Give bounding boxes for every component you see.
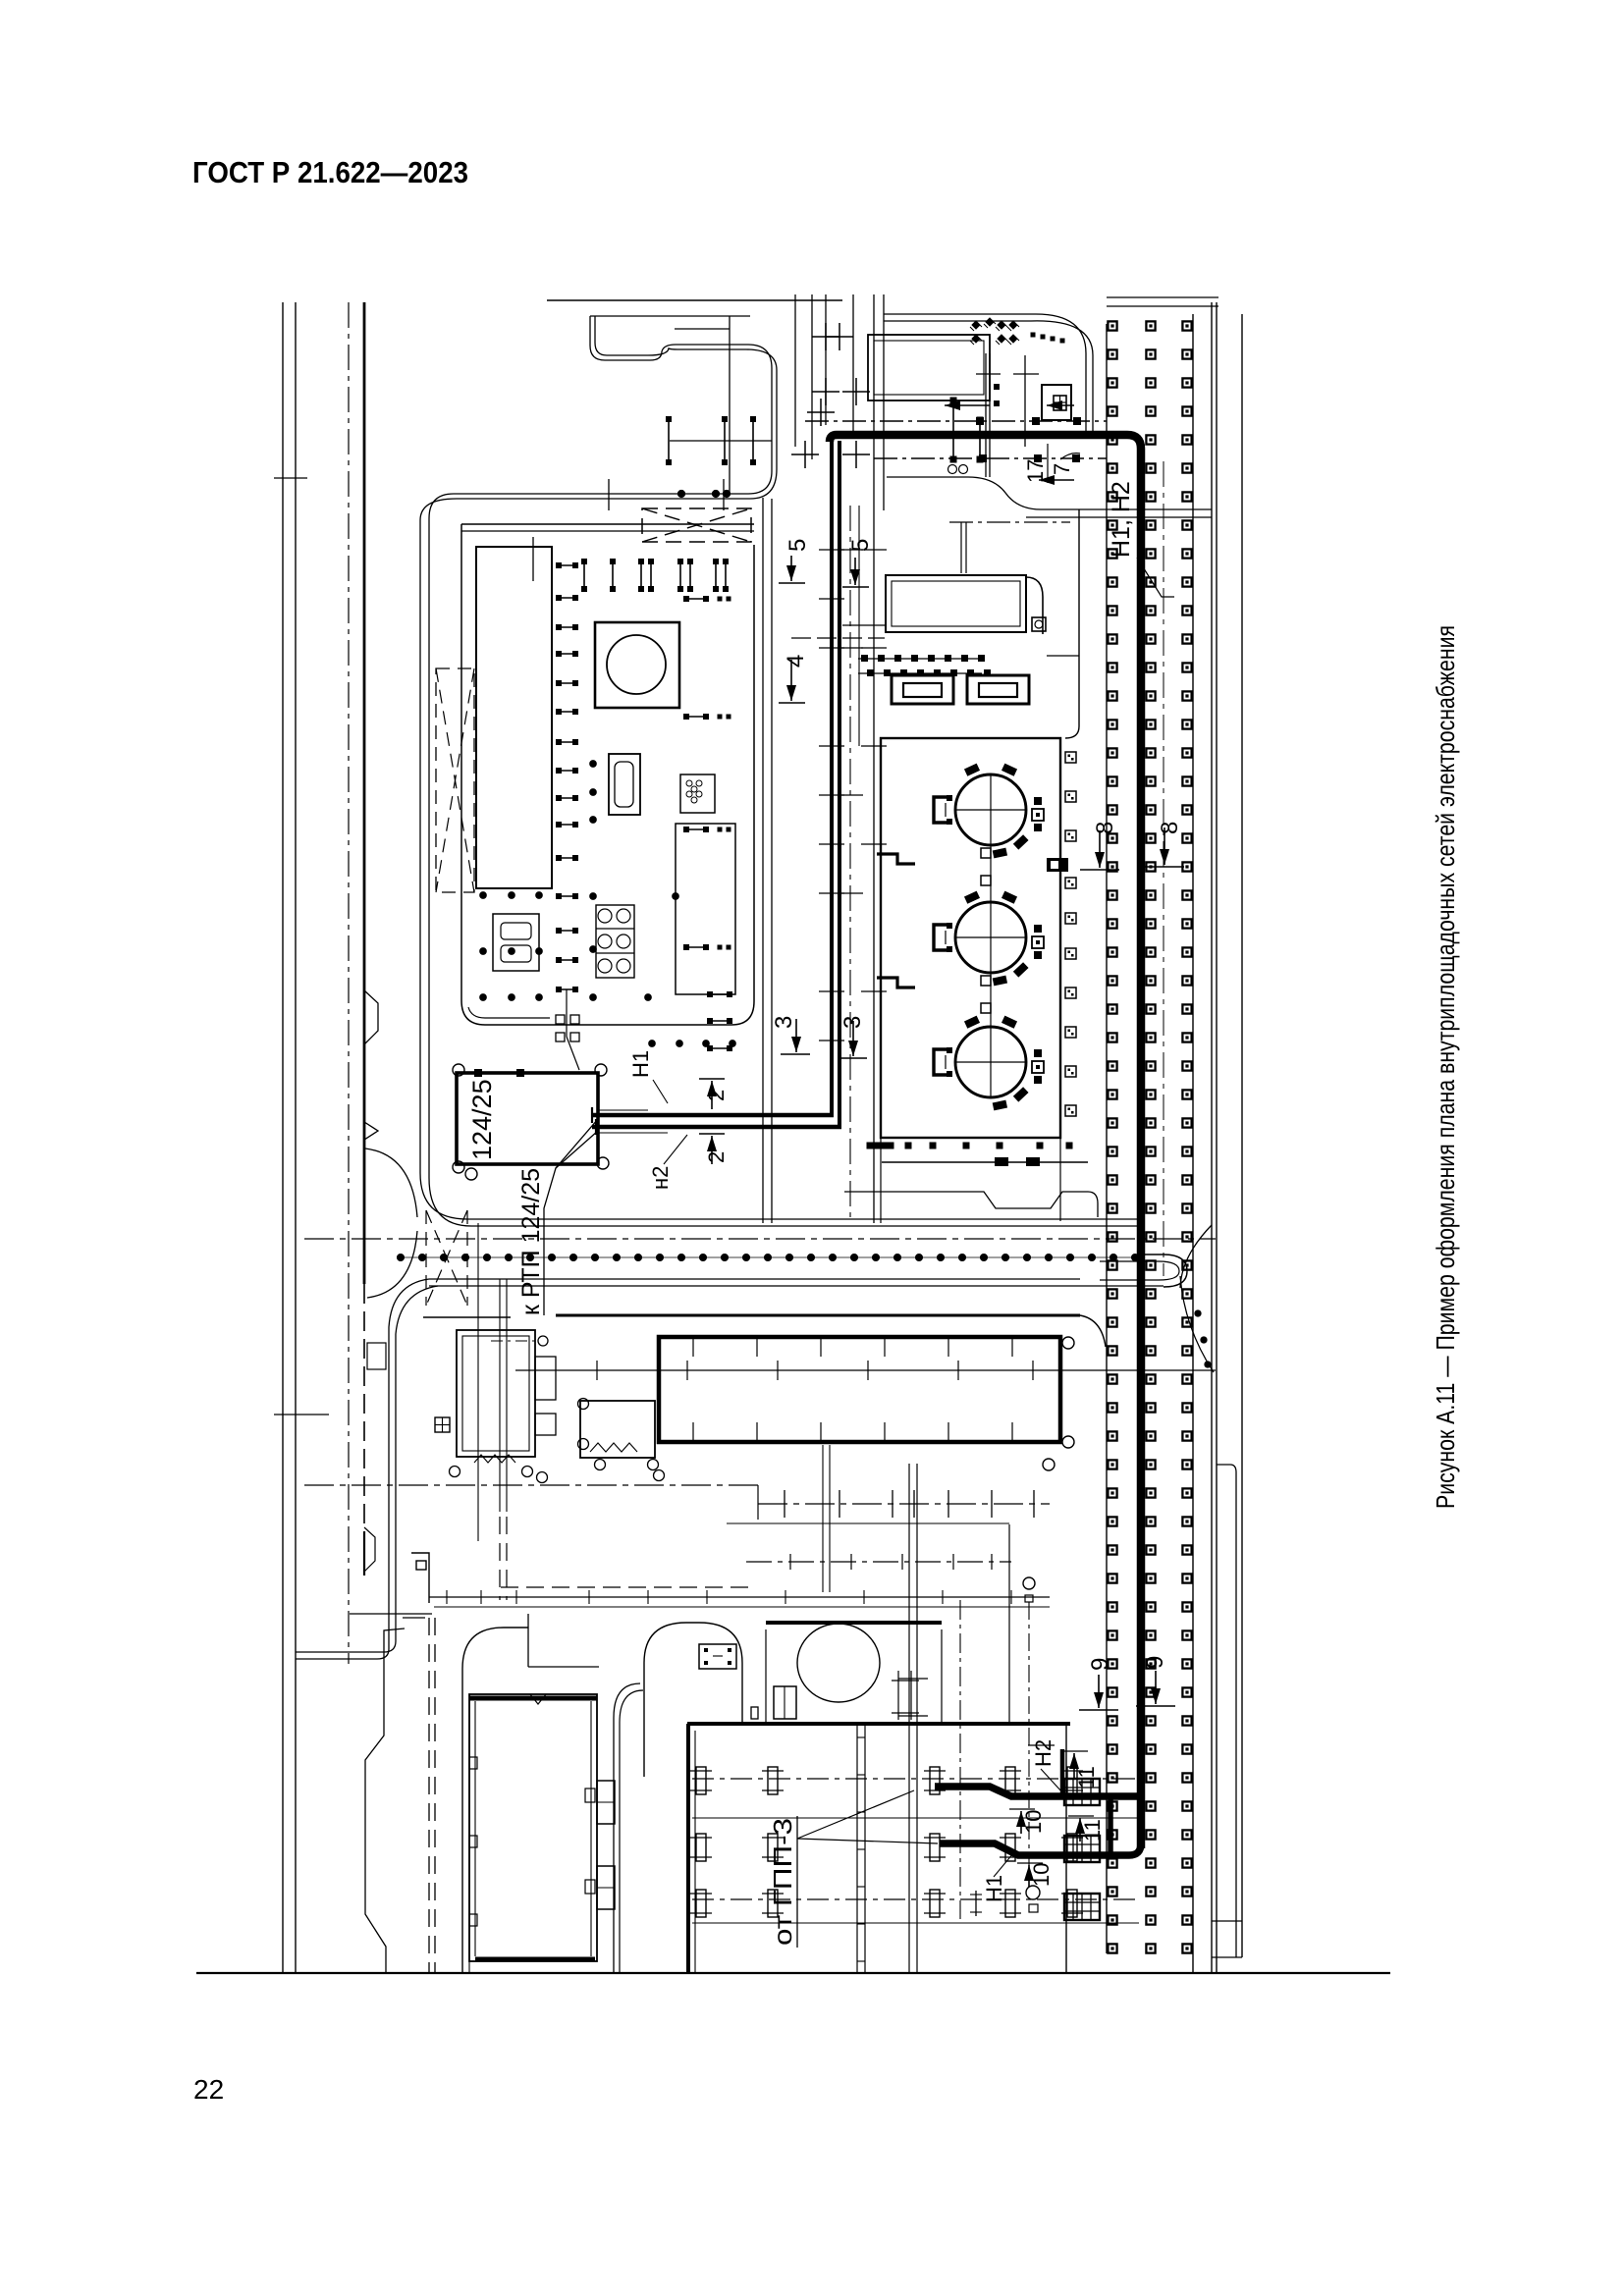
svg-text:ГОСТ Р 21.622—2023: ГОСТ Р 21.622—2023 — [192, 155, 468, 189]
svg-text:9: 9 — [1087, 1658, 1113, 1671]
svg-text:7: 7 — [1050, 463, 1074, 475]
svg-text:10: 10 — [1029, 1863, 1054, 1887]
svg-text:9: 9 — [1142, 1656, 1168, 1669]
svg-text:124/25: 124/25 — [467, 1079, 497, 1160]
svg-text:8: 8 — [1092, 822, 1118, 834]
svg-text:3: 3 — [771, 1016, 797, 1029]
svg-text:4: 4 — [783, 655, 809, 667]
svg-text:10: 10 — [1021, 1810, 1046, 1834]
svg-text:Н1: Н1 — [982, 1875, 1006, 1902]
svg-text:17: 17 — [1023, 459, 1048, 483]
svg-text:8: 8 — [1157, 822, 1183, 834]
svg-text:22: 22 — [193, 2074, 224, 2105]
svg-text:к РТП 124/25: к РТП 124/25 — [517, 1168, 545, 1315]
svg-text:н2: н2 — [648, 1166, 673, 1190]
svg-text:Рисунок А.11 — Пример оформлен: Рисунок А.11 — Пример оформления плана в… — [1431, 625, 1460, 1509]
svg-text:от ГПП-3: от ГПП-3 — [768, 1818, 797, 1946]
svg-text:11: 11 — [1074, 1766, 1099, 1789]
svg-text:5: 5 — [785, 539, 811, 552]
svg-text:Н2: Н2 — [1031, 1739, 1056, 1767]
svg-text:2: 2 — [704, 1151, 729, 1163]
svg-text:Н1: Н1 — [628, 1050, 653, 1078]
